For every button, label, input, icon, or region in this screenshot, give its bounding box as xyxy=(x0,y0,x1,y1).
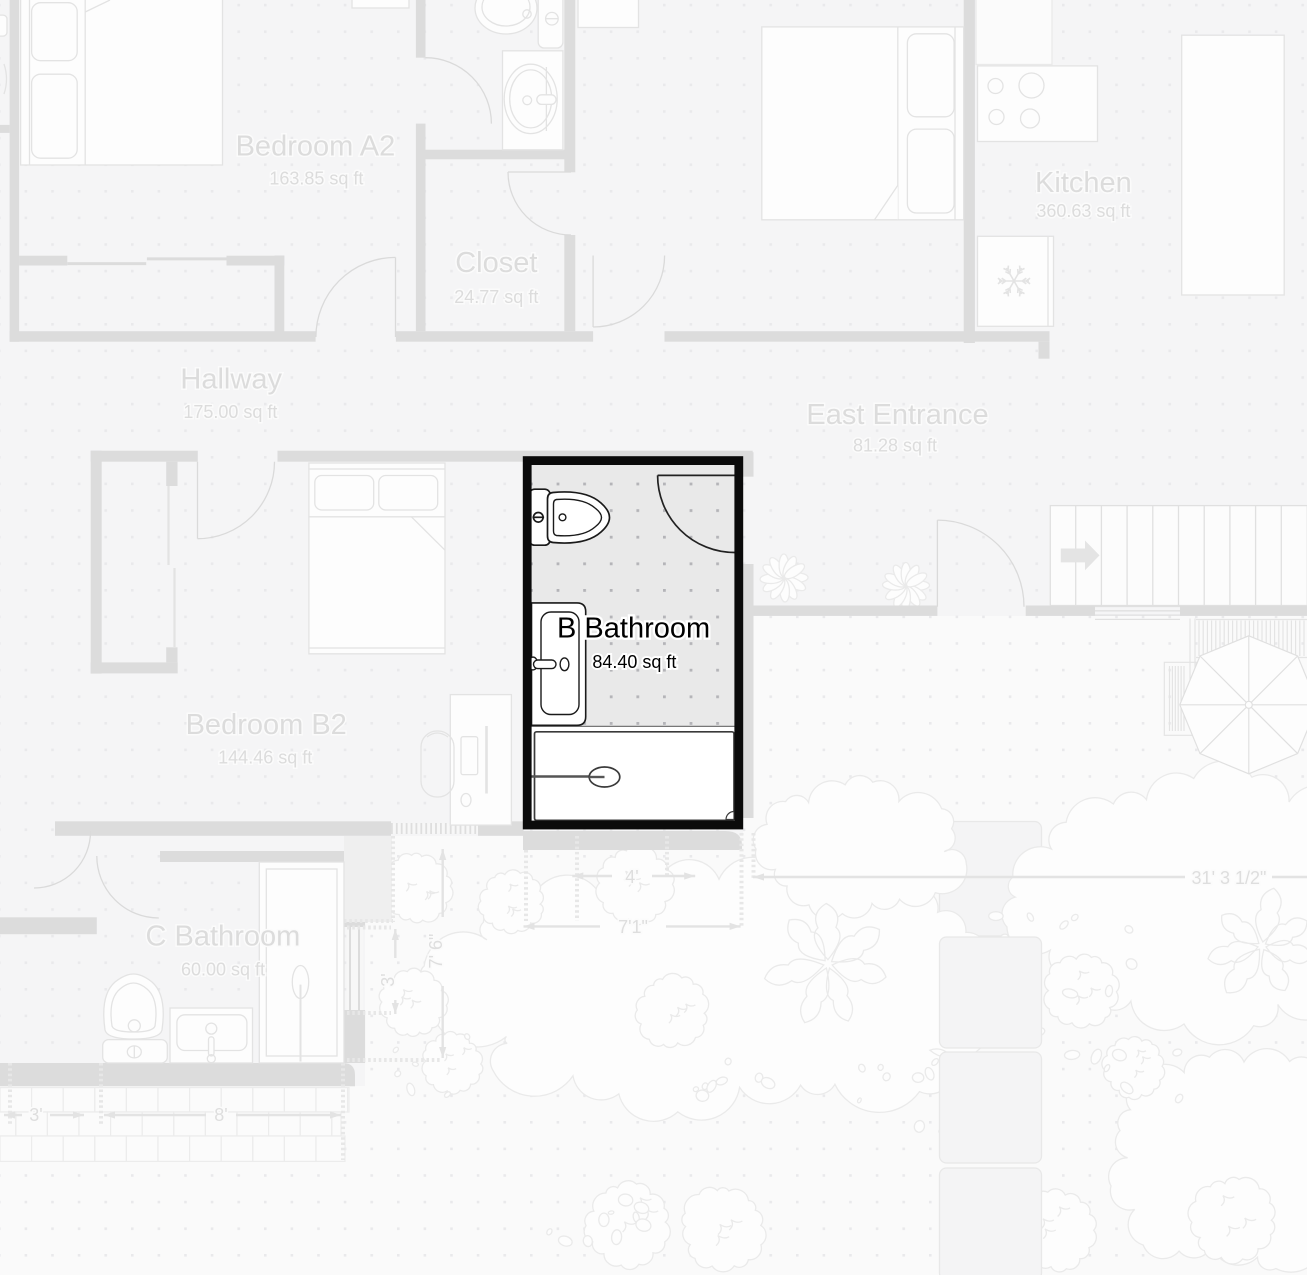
svg-text:Closet: Closet xyxy=(455,247,537,279)
svg-text:8': 8' xyxy=(214,1105,227,1125)
svg-text:60.00 sq ft: 60.00 sq ft xyxy=(181,960,265,980)
svg-text:31' 3 1/2": 31' 3 1/2" xyxy=(1192,868,1267,888)
svg-text:4': 4' xyxy=(625,867,638,887)
svg-text:Bedroom B2: Bedroom B2 xyxy=(186,709,347,741)
svg-text:Kitchen: Kitchen xyxy=(1035,167,1132,199)
svg-text:B Bathroom: B Bathroom xyxy=(557,613,710,645)
svg-text:Hallway: Hallway xyxy=(180,364,282,396)
svg-text:163.85 sq ft: 163.85 sq ft xyxy=(269,169,363,189)
svg-text:3': 3' xyxy=(29,1105,42,1125)
svg-text:7' 6": 7' 6" xyxy=(426,934,446,969)
svg-text:24.77 sq ft: 24.77 sq ft xyxy=(454,287,538,307)
svg-text:81.28 sq ft: 81.28 sq ft xyxy=(853,436,937,456)
svg-text:East Entrance: East Entrance xyxy=(806,399,988,431)
svg-text:144.46 sq ft: 144.46 sq ft xyxy=(218,748,312,768)
svg-text:84.40 sq ft: 84.40 sq ft xyxy=(592,652,676,672)
svg-text:360.63 sq ft: 360.63 sq ft xyxy=(1036,201,1130,221)
svg-text:3': 3' xyxy=(378,973,398,986)
svg-text:175.00 sq ft: 175.00 sq ft xyxy=(183,402,277,422)
svg-text:C Bathroom: C Bathroom xyxy=(146,921,301,953)
svg-text:Bedroom A2: Bedroom A2 xyxy=(236,131,396,163)
svg-text:7'1": 7'1" xyxy=(618,917,648,937)
